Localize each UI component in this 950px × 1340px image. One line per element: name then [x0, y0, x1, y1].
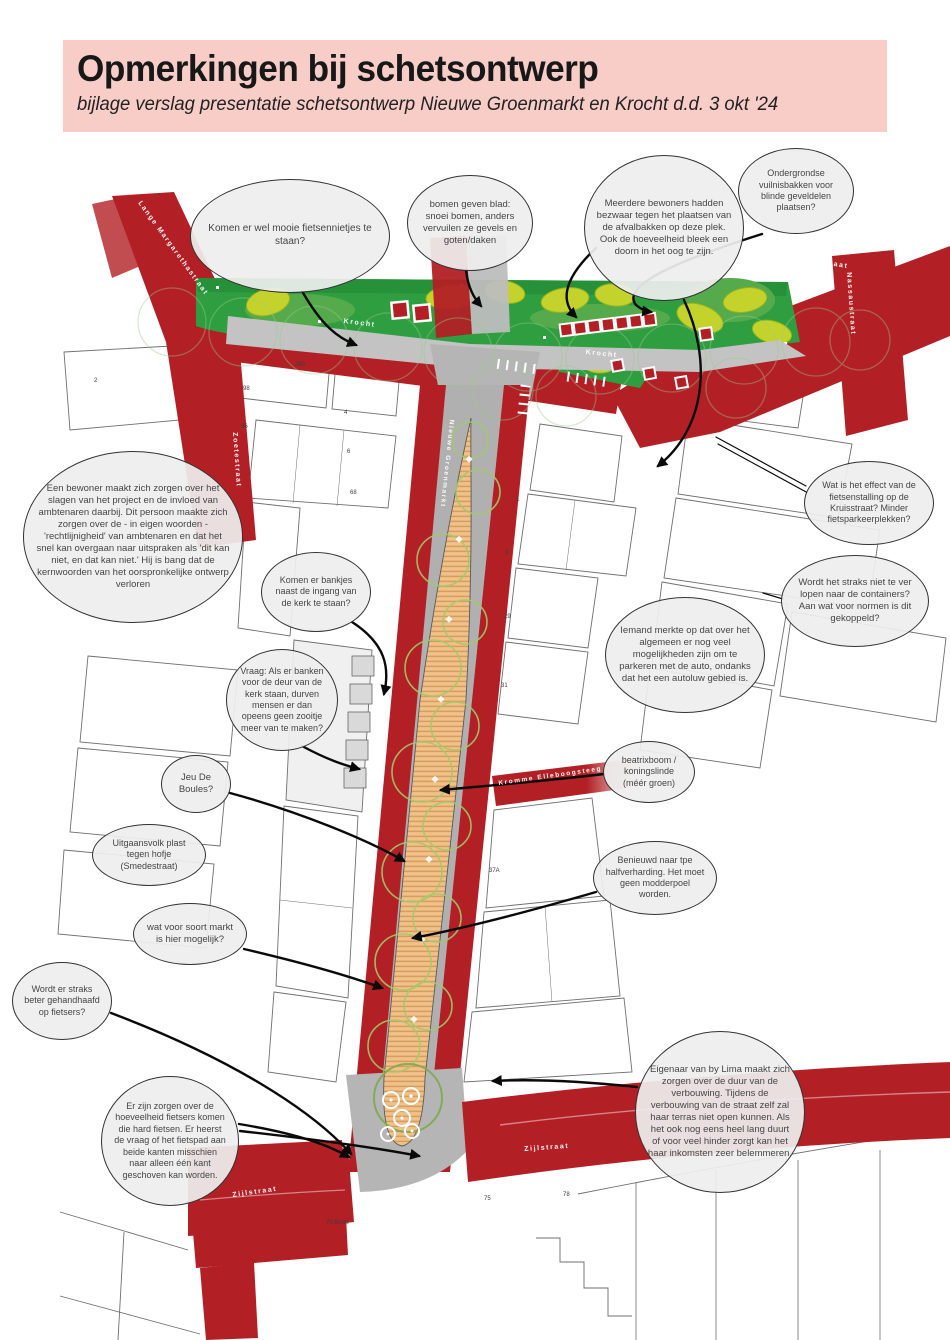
header-banner: Opmerkingen bij schetsontwerp bijlage ve…	[63, 40, 887, 132]
comment-bubble-soort-markt: wat voor soort markt is hier mogelijk?	[133, 903, 247, 965]
parcel-number: 6	[347, 449, 350, 455]
comment-bubble-halfverharding: Benieuwd naar tpe halfverharding. Het mo…	[593, 841, 717, 915]
comment-bubble-uitgaansvolk: Uitgaansvolk plast tegen hofje (Smedestr…	[92, 824, 206, 886]
comment-bubble-jeu-de-boules: Jeu De Boules?	[161, 755, 231, 813]
parcel-number: 280	[295, 362, 305, 368]
parcel-number: 96	[241, 424, 248, 430]
page: Opmerkingen bij schetsontwerp bijlage ve…	[0, 0, 950, 1340]
comment-bubble-bankjes-kerk: Komen er bankjes naast de ingang van de …	[261, 552, 371, 632]
comment-bubble-parkeren-autoluw: Iemand merkte op dat over het algemeen e…	[605, 597, 765, 713]
comment-bubble-rechtlijnigheid: Een bewoner maakt zich zorgen over het s…	[23, 451, 243, 623]
parcel-number: 31	[501, 683, 508, 689]
comment-bubble-fietsennietjes: Komen er wel mooie fietsennietjes te sta…	[190, 179, 390, 293]
comment-bubble-hard-fietsen: Er zijn zorgen over de hoeveelheid fiets…	[101, 1076, 239, 1206]
zijlstraat-road	[186, 1062, 950, 1340]
comment-bubble-by-lima: Eigenaar van by Lima maakt zich zorgen o…	[635, 1031, 805, 1193]
comment-bubble-banken-zooitje: Vraag: Als er banken voor de deur van de…	[226, 649, 338, 751]
comment-bubble-handhaving-fietsers: Wordt er straks beter gehandhaafd op fie…	[12, 962, 112, 1040]
parcel-number: 4	[344, 410, 347, 416]
parcel-number: 29	[504, 614, 511, 620]
parcel-number: 1	[516, 497, 519, 503]
parcel-number: 78	[563, 1192, 570, 1198]
parcel-number: 3	[505, 550, 508, 556]
parcel-number: 68	[350, 490, 357, 496]
parcel-number: 70 BVds	[326, 1220, 349, 1226]
comment-bubble-ondergrondse-vuilnisbakken: Ondergrondse vuilnisbakken voor blinde g…	[738, 148, 854, 234]
parcel-number: 75	[484, 1196, 491, 1202]
page-subtitle: bijlage verslag presentatie schetsontwer…	[77, 94, 849, 116]
comment-bubble-beatrixboom: beatrixboom / koningslinde (méér groen)	[603, 741, 695, 803]
comment-bubble-afvalbakken: Meerdere bewoners hadden bezwaar tegen h…	[584, 155, 744, 301]
parcel-number: 2	[94, 378, 97, 384]
parcel-number: 37A	[489, 868, 500, 874]
comment-bubble-fietsenstalling-kruisstraat: Wat is het effect van de fietsenstalling…	[804, 461, 934, 545]
comment-bubble-containers-lopen: Wordt het straks niet te ver lopen naar …	[781, 555, 929, 647]
parcel-number: 98	[243, 386, 250, 392]
page-title: Opmerkingen bij schetsontwerp	[77, 50, 833, 89]
comment-bubble-bomen-blad: bomen geven blad: snoei bomen, anders ve…	[407, 175, 533, 271]
